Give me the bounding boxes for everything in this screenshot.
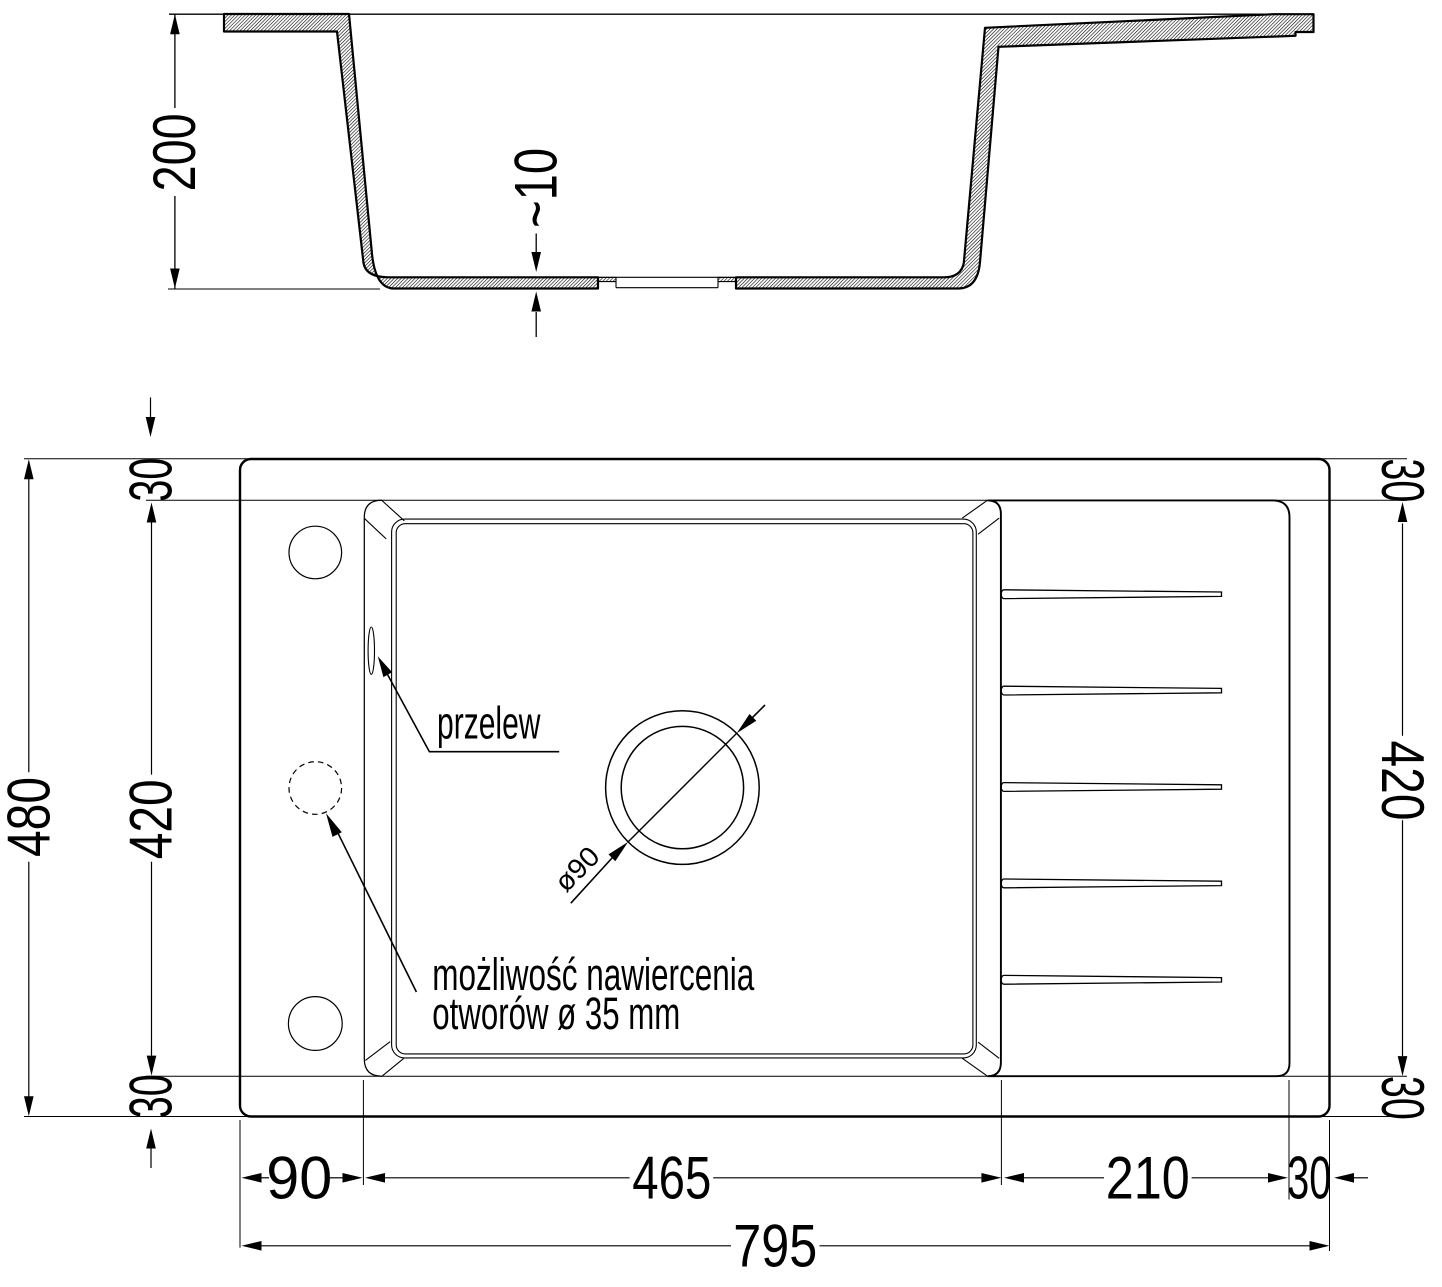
svg-text:420: 420 bbox=[1369, 741, 1436, 821]
svg-text:30: 30 bbox=[1287, 1144, 1331, 1211]
svg-text:30: 30 bbox=[1369, 1076, 1436, 1120]
svg-text:795: 795 bbox=[733, 1212, 817, 1279]
svg-text:210: 210 bbox=[1106, 1144, 1190, 1211]
svg-text:465: 465 bbox=[632, 1144, 711, 1211]
svg-text:30: 30 bbox=[1369, 458, 1436, 502]
svg-text:30: 30 bbox=[117, 1074, 184, 1118]
svg-text:otworów ø 35 mm: otworów ø 35 mm bbox=[432, 988, 680, 1039]
svg-text:200: 200 bbox=[141, 113, 208, 191]
svg-text:420: 420 bbox=[118, 779, 185, 859]
svg-text:90: 90 bbox=[266, 1144, 332, 1211]
svg-text:przelew: przelew bbox=[437, 698, 541, 749]
svg-text:30: 30 bbox=[117, 458, 184, 502]
svg-text:480: 480 bbox=[0, 777, 62, 857]
svg-text:~10: ~10 bbox=[503, 148, 570, 228]
